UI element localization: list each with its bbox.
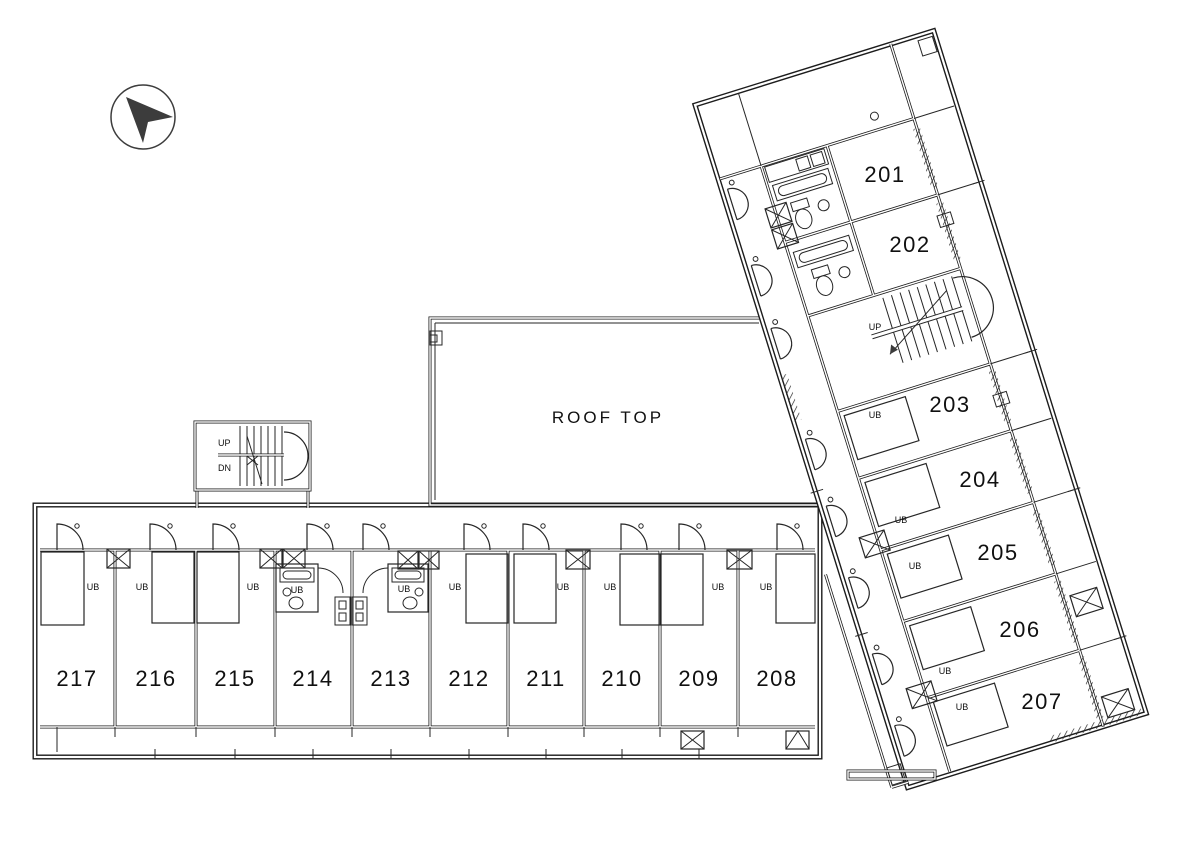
ub-label: UB (956, 702, 969, 712)
ub-label: UB (398, 584, 411, 594)
room-label-209: 209 (678, 666, 719, 691)
ub-label: UB (712, 582, 725, 592)
ub-label: UB (136, 582, 149, 592)
floor-plan: 217 216 215 214 213 212 211 210 209 208 … (0, 0, 1191, 842)
room-label-202: 202 (889, 232, 930, 257)
room-label-201: 201 (864, 162, 905, 187)
stairs-up-label: UP (869, 322, 882, 332)
room-label-204: 204 (959, 467, 1000, 492)
ub-label: UB (604, 582, 617, 592)
room-label-212: 212 (448, 666, 489, 691)
ub-label: UB (939, 666, 952, 676)
room-label-216: 216 (135, 666, 176, 691)
ub-label: UB (291, 585, 304, 595)
ub-label: UB (449, 582, 462, 592)
room-label-217: 217 (56, 666, 97, 691)
roof-top-label: ROOF TOP (552, 408, 664, 427)
room-label-211: 211 (526, 666, 566, 691)
room-label-203: 203 (929, 392, 970, 417)
room-label-214: 214 (292, 666, 333, 691)
ub-label: UB (869, 410, 882, 420)
floor-plan-page: 217 216 215 214 213 212 211 210 209 208 … (0, 0, 1191, 842)
room-label-213: 213 (370, 666, 411, 691)
room-label-205: 205 (977, 540, 1018, 565)
roof-access-box (430, 331, 442, 345)
ub-label: UB (909, 561, 922, 571)
ub-label: UB (895, 515, 908, 525)
ub-label: UB (247, 582, 260, 592)
ub-label: UB (87, 582, 100, 592)
room-label-207: 207 (1021, 689, 1062, 714)
room-label-206: 206 (999, 617, 1040, 642)
room-label-210: 210 (601, 666, 642, 691)
room-label-208: 208 (756, 666, 797, 691)
ub-label: UB (557, 582, 570, 592)
ub-label: UB (760, 582, 773, 592)
stairs-up-label: UP (218, 438, 231, 448)
room-label-215: 215 (214, 666, 255, 691)
stairs-down-label: DN (218, 463, 231, 473)
wing-b-building (35, 490, 820, 759)
north-arrow-icon (111, 85, 175, 149)
stairwell-west (195, 422, 310, 490)
